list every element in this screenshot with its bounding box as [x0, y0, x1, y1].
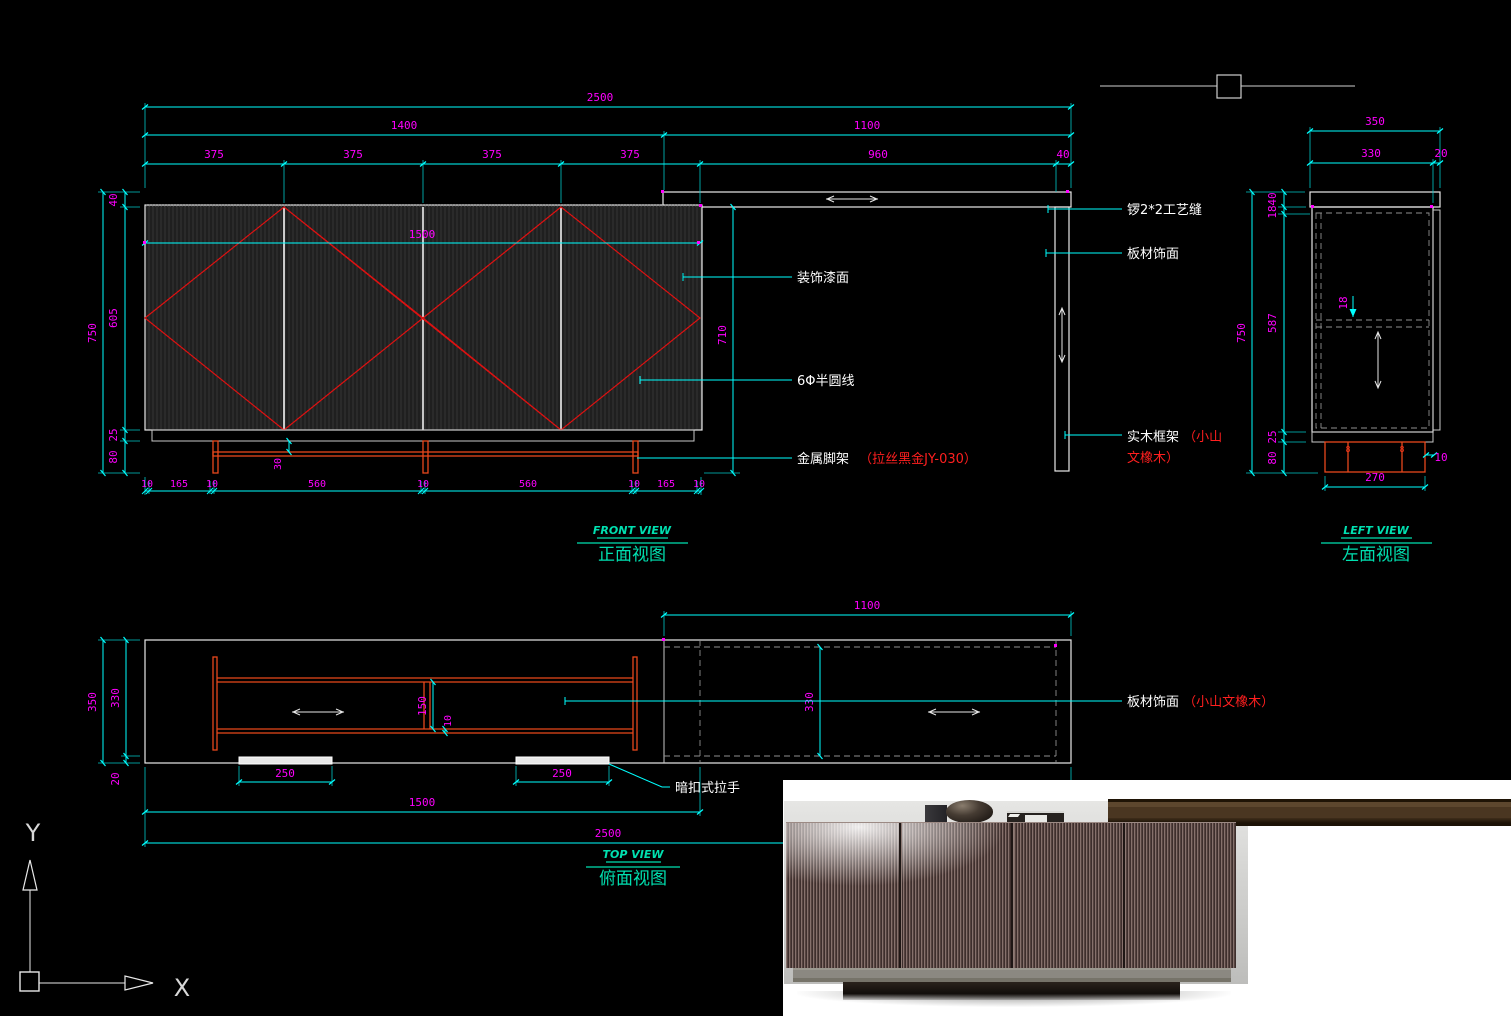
front-plinth — [152, 430, 694, 441]
left-body — [1312, 207, 1433, 432]
front-bottom-dim-chain: 10 165 10 560 10 560 10 165 10 — [141, 479, 705, 494]
dim-top-thickness: 40 — [107, 193, 120, 206]
left-plinth — [1312, 432, 1433, 442]
dim-bottom-seg: 560 — [308, 479, 326, 490]
dim-leg-height: 80 — [107, 450, 120, 463]
axis-x-arrowhead — [125, 976, 153, 990]
photo-clock-detail — [1008, 814, 1020, 817]
label-panel-veneer-text: 板材饰面 — [1127, 695, 1179, 710]
dim-bottom-seg: 10 — [417, 479, 429, 490]
top-title-cn: 俯面视图 — [599, 869, 667, 889]
product-photo — [783, 780, 1511, 1016]
photo-highlight — [786, 823, 1046, 903]
dim-bottom-seg: 10 — [628, 479, 640, 490]
label-metal-leg-text: 金属脚架 — [797, 451, 849, 467]
grain-arrow-horizontal — [928, 709, 980, 715]
cad-canvas: 2500 1400 1100 375 375 375 375 960 40 75… — [0, 0, 1511, 1016]
dim-body-depth: 330 — [1361, 147, 1381, 160]
dim-counter: 960 — [868, 148, 888, 161]
dim-height: 750 — [1235, 323, 1248, 343]
dim-bottom-seg: 10 — [141, 479, 153, 490]
dim-depth: 350 — [86, 692, 99, 712]
dim-door-height: 587 — [1266, 313, 1279, 333]
dim-plinth-height: 25 — [107, 428, 120, 441]
left-title-en: LEFT VIEW — [1343, 524, 1409, 537]
dim-door-width: 375 — [620, 148, 640, 161]
dim-depth: 350 — [1365, 115, 1385, 128]
dim-back: 20 — [109, 772, 122, 785]
dim-total-width: 2500 — [595, 827, 622, 840]
photo-clock-face — [1025, 815, 1047, 822]
label-panel-veneer: 板材饰面 — [1127, 247, 1179, 262]
photo-book — [925, 805, 947, 823]
dim-rail-thickness: 10 — [443, 715, 454, 727]
dim-left-section: 1400 — [391, 119, 418, 132]
label-metal-leg-note: （拉丝黑金JY-030） — [859, 451, 977, 467]
top-view-title: TOP VIEW 俯面视图 — [586, 848, 680, 889]
dim-shelf-thickness: 18 — [1337, 296, 1350, 309]
dim-bottom-seg: 10 — [206, 479, 218, 490]
photo-door-divider — [899, 823, 902, 968]
grain-arrow-horizontal — [826, 196, 878, 202]
push-handle — [516, 757, 609, 764]
left-hidden-door — [1316, 213, 1429, 428]
label-solid-frame-text: 实木框架 — [1127, 430, 1179, 445]
dim-handle: 250 — [552, 767, 572, 780]
leg-mark: 8 — [1346, 445, 1351, 454]
dim-bottom-seg: 10 — [693, 479, 705, 490]
break-line-marker — [1100, 75, 1355, 98]
photo-door-divider — [1123, 823, 1126, 968]
photo-vase — [946, 800, 993, 823]
dim-handle: 250 — [275, 767, 295, 780]
left-back-panel — [1433, 210, 1440, 430]
dim-door-width: 375 — [343, 148, 363, 161]
dim-right-section: 1100 — [854, 599, 881, 612]
dim-plinth-height: 25 — [1266, 430, 1279, 443]
axis-y-arrowhead — [23, 860, 37, 890]
photo-base-recess — [843, 982, 1180, 1000]
dim-under-height: 710 — [716, 325, 729, 345]
dim-bottom-seg: 560 — [519, 479, 537, 490]
dim-door-width: 375 — [482, 148, 502, 161]
dim-leg-inset: 10 — [1434, 451, 1447, 464]
axis-y-label: Y — [25, 819, 41, 847]
left-view-title: LEFT VIEW 左面视图 — [1321, 524, 1432, 565]
grain-arrow-vertical — [1059, 308, 1065, 362]
left-countertop — [1310, 192, 1440, 207]
dim-door-width: 375 — [204, 148, 224, 161]
dim-leg-setback: 30 — [273, 458, 284, 470]
dim-top-thickness: 40 — [1266, 192, 1279, 205]
leg-mark: 8 — [1400, 445, 1405, 454]
photo-door-divider — [1011, 823, 1014, 968]
front-title-en: FRONT VIEW — [593, 524, 672, 537]
label-solid-frame-note2: 文橡木） — [1127, 451, 1179, 466]
dim-doors-width: 1500 — [409, 796, 436, 809]
dim-leg-frame-width: 270 — [1365, 471, 1385, 484]
left-dimensions: 350 330 20 750 40 18 587 25 80 18 270 10 — [1235, 115, 1448, 491]
ucs-icon: Y X — [20, 819, 190, 1002]
grain-arrow-vertical — [1375, 332, 1381, 388]
top-view — [145, 640, 1071, 764]
dim-doors-width: 1500 — [409, 228, 436, 241]
label-panel-veneer-note: （小山文橡木） — [1183, 695, 1274, 710]
dim-edge: 40 — [1056, 148, 1069, 161]
dim-back: 20 — [1434, 147, 1447, 160]
axis-x-label: X — [174, 974, 190, 1002]
dim-total-width: 2500 — [587, 91, 614, 104]
label-paint-finish: 装饰漆面 — [797, 270, 849, 286]
photo-plinth — [793, 968, 1231, 982]
label-panel-veneer: 板材饰面 （小山文橡木） — [1127, 695, 1274, 710]
dim-right-depth: 330 — [803, 692, 816, 712]
label-solid-frame-note1: （小山 — [1183, 430, 1222, 445]
dim-rail-gap: 150 — [416, 696, 429, 716]
top-title-en: TOP VIEW — [603, 848, 665, 861]
left-metal-legs — [1325, 442, 1425, 472]
dim-body-depth: 330 — [109, 688, 122, 708]
front-view — [145, 192, 1071, 473]
label-push-handle: 暗扣式拉手 — [675, 781, 740, 796]
label-solid-frame: 实木框架 （小山 — [1127, 430, 1222, 445]
label-groove: 锣2*2工艺缝 — [1127, 203, 1202, 218]
dim-right-section: 1100 — [854, 119, 881, 132]
axis-origin — [20, 972, 39, 991]
grain-arrow-horizontal — [292, 709, 344, 715]
dim-door-height: 605 — [107, 308, 120, 328]
label-half-round-bead: 6Φ半圆线 — [797, 374, 855, 389]
dim-leg-height: 80 — [1266, 451, 1279, 464]
label-metal-leg: 金属脚架 （拉丝黑金JY-030） — [797, 451, 977, 467]
dim-bottom-seg: 165 — [657, 479, 675, 490]
left-title-cn: 左面视图 — [1342, 545, 1410, 565]
dim-height: 750 — [86, 323, 99, 343]
front-title-cn: 正面视图 — [598, 545, 666, 565]
front-view-title: FRONT VIEW 正面视图 — [577, 524, 688, 565]
dim-top-gap: 18 — [1266, 205, 1279, 218]
dim-bottom-seg: 165 — [170, 479, 188, 490]
left-view: 8 8 — [1310, 192, 1440, 472]
push-handle — [239, 757, 332, 764]
